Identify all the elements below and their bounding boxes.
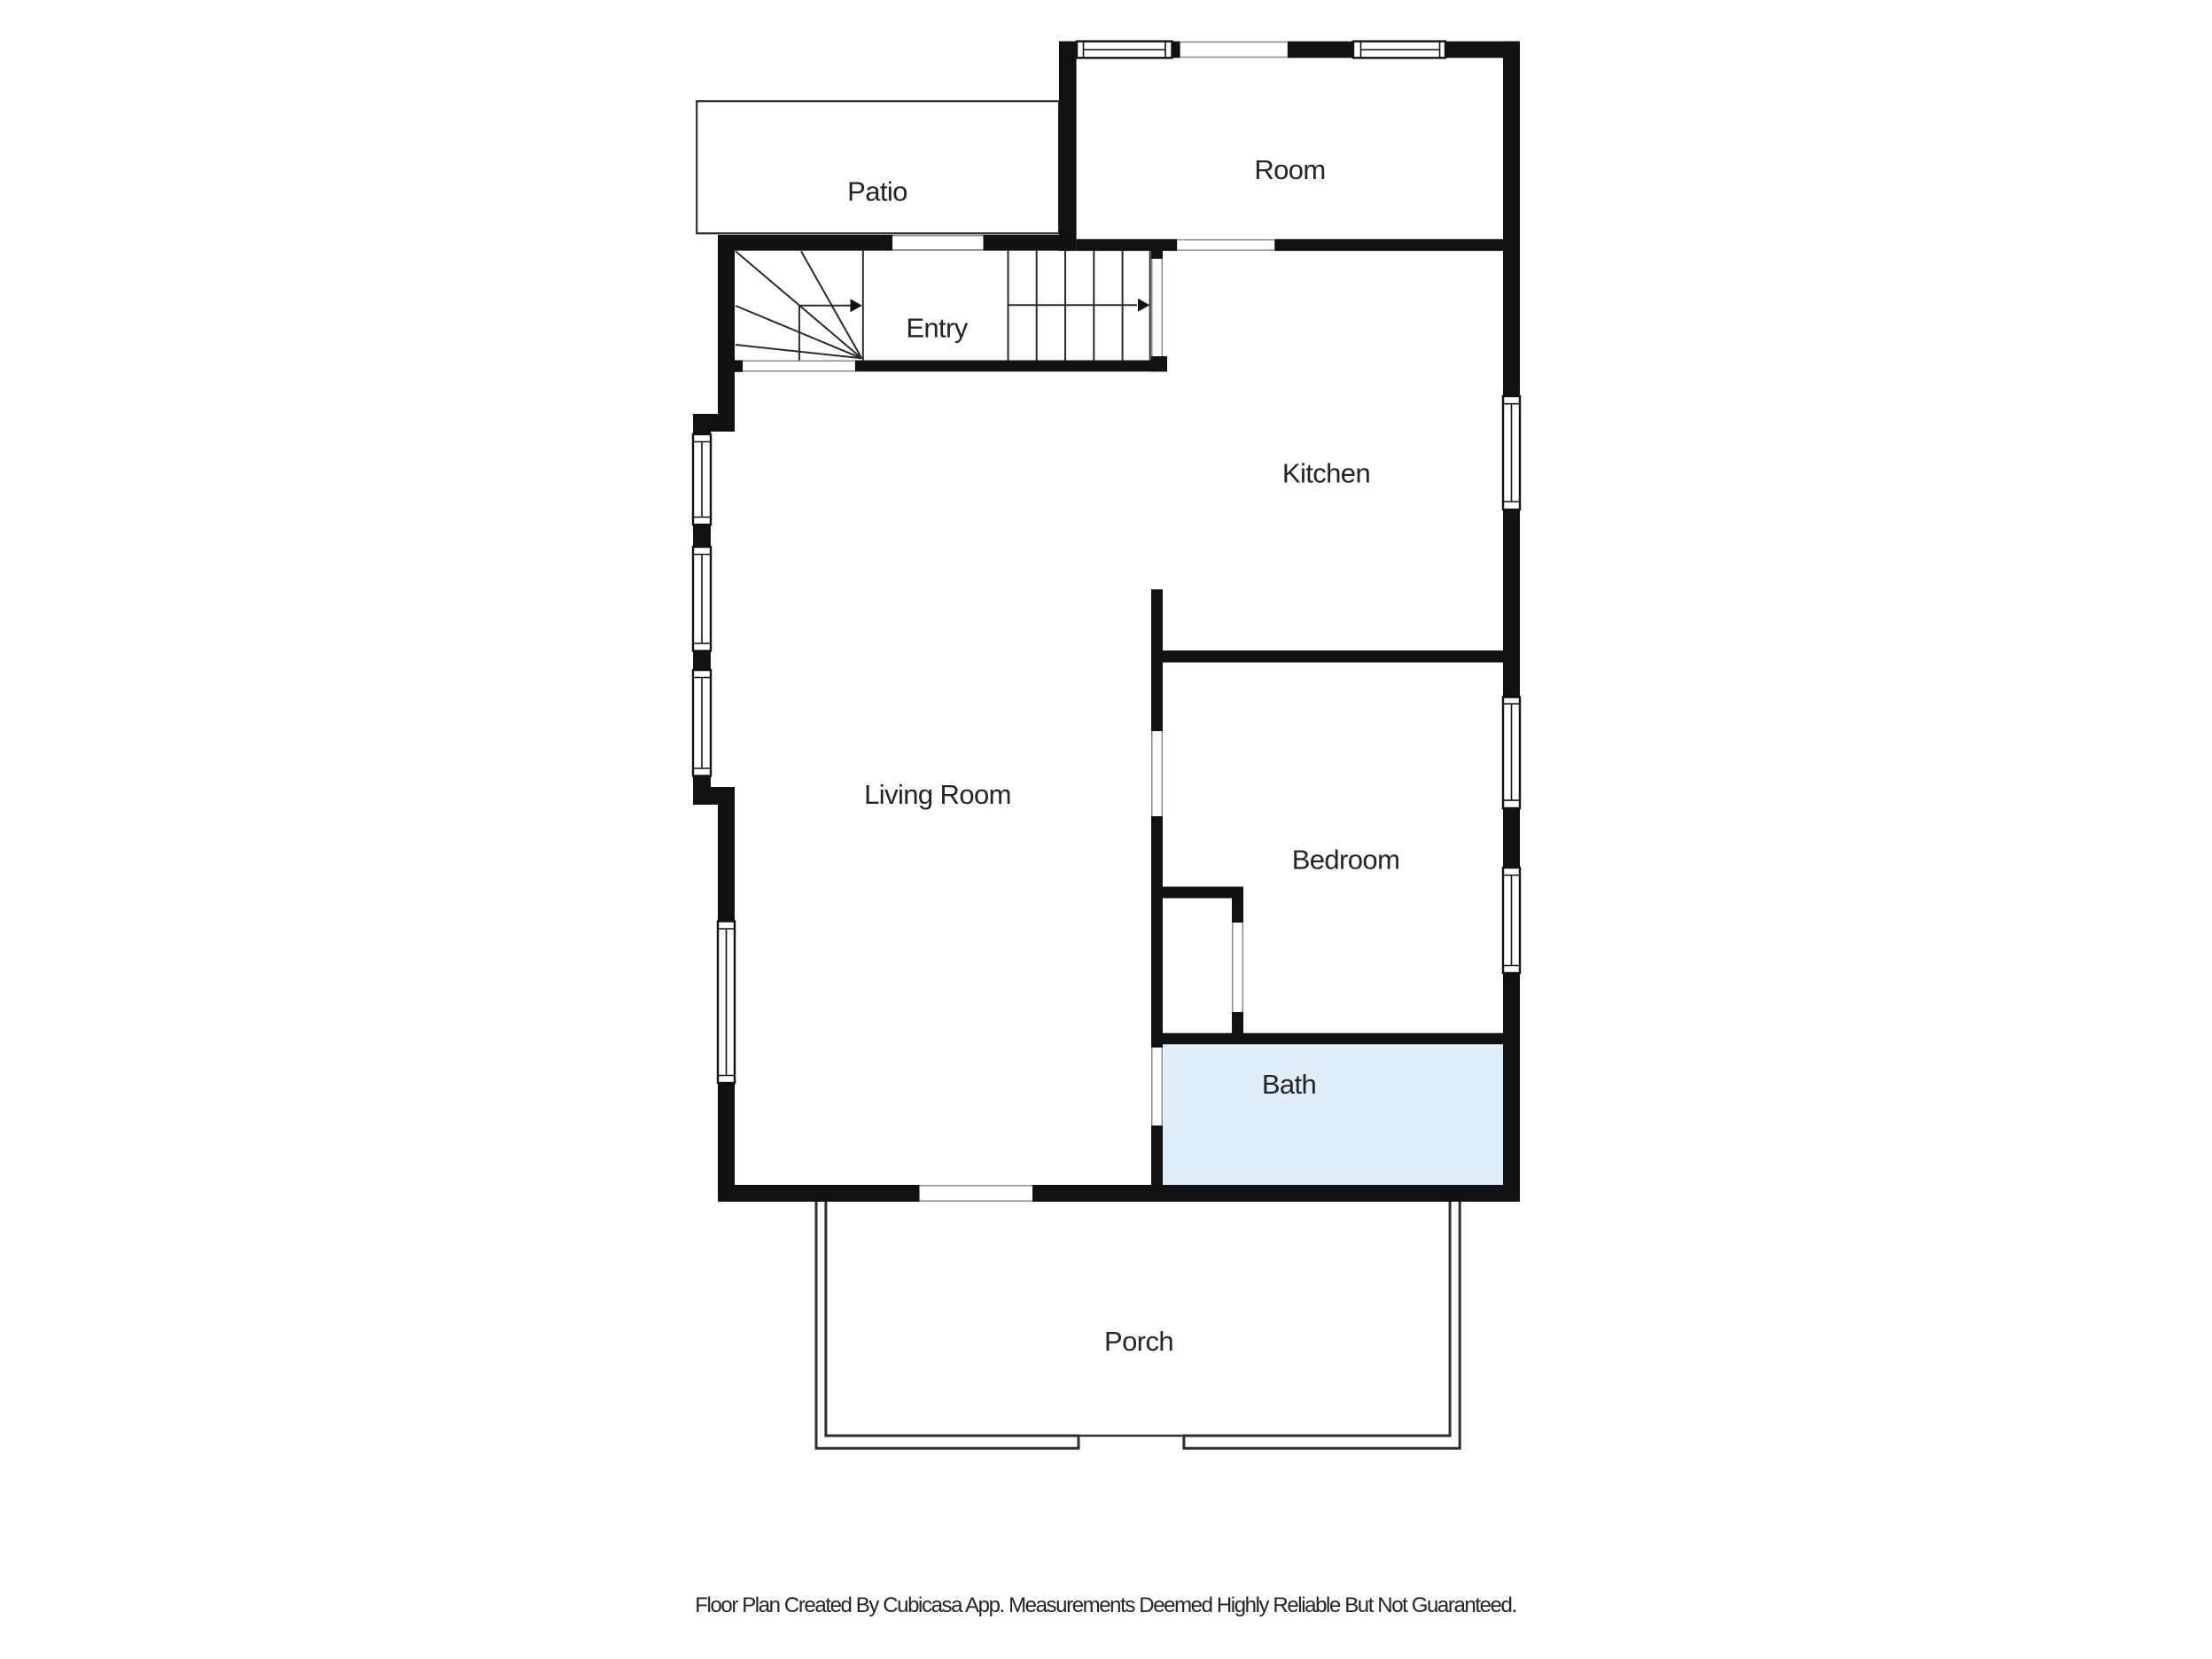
svg-text:Floor Plan Created By Cubicasa: Floor Plan Created By Cubicasa App. Meas… [695, 1593, 1515, 1617]
svg-text:Room: Room [1254, 154, 1325, 185]
svg-text:Patio: Patio [847, 176, 907, 207]
svg-text:Living Room: Living Room [864, 779, 1011, 810]
svg-text:Bath: Bath [1262, 1069, 1316, 1100]
svg-text:Kitchen: Kitchen [1282, 458, 1370, 489]
svg-text:Porch: Porch [1104, 1326, 1173, 1357]
svg-text:Entry: Entry [906, 313, 968, 344]
svg-text:Bedroom: Bedroom [1292, 845, 1400, 876]
